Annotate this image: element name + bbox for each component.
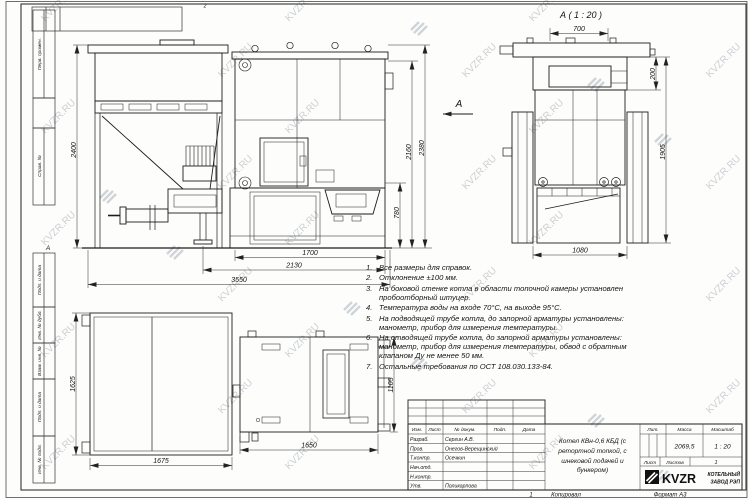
watermark-text: KVZR.RU bbox=[283, 433, 322, 472]
dim-1650: 1650 bbox=[301, 443, 317, 450]
margin-label: Инв. № дубл. bbox=[37, 310, 43, 340]
title-block-rows: Разраб. Сергин А.В. Пров. Онегов-Верещин… bbox=[410, 437, 498, 490]
note-item: 6.На отводящей трубе котла, до запорной … bbox=[366, 334, 642, 361]
notes-list: 1.Все размеры для справок. 2.Отклонение … bbox=[366, 264, 642, 373]
note-text: На отводящей трубе котла, до запорной ар… bbox=[379, 334, 642, 361]
margin-label: Справ. № bbox=[37, 155, 43, 177]
rear-view-title: А ( 1 : 20 ) bbox=[559, 10, 602, 20]
tb-col-podp: Подп. bbox=[494, 427, 507, 433]
margin-label: Подп. и дата bbox=[37, 265, 43, 295]
watermark-text: KVZR.RU bbox=[460, 153, 499, 192]
dim-1905: 1905 bbox=[660, 144, 667, 160]
watermark-text: KVZR.RU bbox=[283, 97, 322, 136]
tb-col-docnum: № докум. bbox=[454, 427, 475, 433]
footer-copy-label: Копировал bbox=[551, 493, 581, 499]
drawing-title: Котел КВн-0,6 КБД (с ретортной топкой, с… bbox=[546, 425, 639, 488]
tb-role: Нач.отд. bbox=[410, 465, 432, 471]
company-line-1: КОТЕЛЬНЫЙ bbox=[707, 470, 740, 478]
watermark-text: KVZR.RU bbox=[704, 153, 743, 192]
rear-view-labels: А ( 1 : 20 ) 700 200 1905 1080 bbox=[559, 10, 667, 255]
dim-1105: 1105 bbox=[388, 377, 395, 392]
watermark-text: KVZR.RU bbox=[704, 41, 743, 80]
plan-view-dim-labels: 1625 1675 1650 1105 bbox=[70, 376, 395, 465]
front-view bbox=[82, 40, 393, 248]
view-arrow-label: А bbox=[455, 99, 463, 110]
brand-text: KVZR bbox=[662, 472, 696, 486]
tb-col-izm: Изм. bbox=[412, 427, 422, 433]
margin-label: Подп. и дата bbox=[37, 392, 43, 422]
tb-role: Утв. bbox=[410, 484, 422, 490]
note-number: 7. bbox=[366, 363, 379, 372]
note-text: Температура воды на входе 70°С, на выход… bbox=[379, 304, 562, 313]
title-block-header: Изм. Лист № докум. Подп. Дата bbox=[412, 427, 536, 433]
margin-labels: Перв. примен. Справ. № Подп. и дата Инв.… bbox=[37, 4, 207, 474]
tb-role: Пров. bbox=[410, 446, 424, 452]
tb-role: Н.контр. bbox=[410, 474, 432, 480]
tb-name: Осечкин bbox=[445, 456, 465, 462]
watermark-text: KVZR.RU bbox=[704, 265, 743, 304]
dim-1625: 1625 bbox=[70, 376, 77, 392]
dim-1080: 1080 bbox=[572, 248, 588, 255]
tb-name: Онегов-Верещинский bbox=[445, 445, 498, 452]
dim-2380: 2380 bbox=[419, 140, 426, 157]
tb-lit-label: Лит. bbox=[646, 427, 658, 433]
watermark-text: KVZR.RU bbox=[283, 321, 322, 360]
tb-col-data: Дата bbox=[522, 427, 536, 433]
zone-letter: А bbox=[45, 245, 50, 252]
footer-zone: 1 bbox=[529, 493, 532, 499]
front-view-dimensions bbox=[73, 45, 432, 288]
dim-200: 200 bbox=[650, 68, 657, 81]
tb-name: Поликарпова bbox=[445, 484, 477, 490]
margin-label: Взам. инв. № bbox=[37, 346, 43, 376]
tb-sheet-label: Лист bbox=[643, 460, 656, 466]
note-number: 5. bbox=[366, 315, 379, 333]
tb-sheets-value: 1 bbox=[714, 460, 717, 466]
note-item: 7.Остальные требования по ОСТ 108.030.13… bbox=[366, 363, 642, 372]
watermark-text: KVZR.RU bbox=[39, 321, 78, 360]
dim-2400: 2400 bbox=[71, 142, 78, 159]
note-text: Отклонение ±100 мм. bbox=[379, 274, 458, 283]
tb-mass-value: 2069,5 bbox=[674, 444, 695, 451]
watermark-stamp-icon bbox=[100, 190, 116, 203]
watermark-text: KVZR.RU bbox=[460, 41, 499, 80]
title-block-right: Лит. Масса Масштаб 2069,5 1 : 20 Лист Ли… bbox=[643, 427, 734, 466]
watermark-text: KVZR.RU bbox=[39, 97, 78, 136]
watermark-stamp-icon bbox=[588, 78, 604, 91]
watermark-text: KVZR.RU bbox=[283, 209, 322, 248]
tb-mass-label: Масса bbox=[677, 427, 692, 433]
watermark-text: KVZR.RU bbox=[704, 377, 743, 416]
plan-view bbox=[82, 313, 390, 455]
drawing-sheet: KVZR.RUKVZR.RUKVZR.RUKVZR.RUKVZR.RUKVZR.… bbox=[0, 0, 750, 500]
note-text: На подводящей трубе котла, до запорной а… bbox=[379, 315, 642, 333]
note-item: 2.Отклонение ±100 мм. bbox=[366, 274, 642, 283]
company-line-2: ЗАВОД РЭП bbox=[710, 480, 740, 486]
note-text: Все размеры для справок. bbox=[379, 264, 472, 273]
watermark-text: KVZR.RU bbox=[39, 433, 78, 472]
watermark-text: KVZR.RU bbox=[460, 377, 499, 416]
tb-sheets-label: Листов bbox=[665, 460, 684, 466]
tb-scale-value: 1 : 20 bbox=[714, 444, 731, 451]
view-direction-marker: А bbox=[443, 99, 473, 114]
tb-col-list: Лист bbox=[427, 427, 440, 433]
note-item: 3.На боковой стенке котла в области топо… bbox=[366, 285, 642, 303]
tb-role: Разраб. bbox=[410, 437, 429, 443]
note-item: 5.На подводящей трубе котла, до запорной… bbox=[366, 315, 642, 333]
watermark-text: KVZR.RU bbox=[39, 209, 78, 248]
tb-role: Т.контр. bbox=[410, 456, 431, 462]
tb-scale-label: Масштаб bbox=[711, 427, 734, 433]
note-number: 3. bbox=[366, 285, 379, 303]
tb-name: Сергин А.В. bbox=[445, 437, 474, 443]
sheet-frame bbox=[6, 2, 747, 498]
note-number: 2. bbox=[366, 274, 379, 283]
note-text: На боковой стенке котла в области топочн… bbox=[379, 285, 642, 303]
note-item: 1.Все размеры для справок. bbox=[366, 264, 642, 273]
note-item: 4.Температура воды на входе 70°С, на вых… bbox=[366, 304, 642, 313]
dim-700: 700 bbox=[573, 26, 585, 33]
note-number: 4. bbox=[366, 304, 379, 313]
rear-view bbox=[500, 38, 655, 243]
note-number: 6. bbox=[366, 334, 379, 361]
zone-number: 2 bbox=[203, 4, 207, 10]
note-text: Остальные требования по ОСТ 108.030.133-… bbox=[379, 363, 553, 372]
note-number: 1. bbox=[366, 264, 379, 273]
watermark-stamp-icon bbox=[411, 22, 427, 35]
footer-format-label: Формат А3 bbox=[654, 493, 687, 499]
dim-780: 780 bbox=[394, 207, 401, 219]
dim-2160: 2160 bbox=[406, 144, 413, 161]
dim-1675: 1675 bbox=[153, 458, 169, 465]
margin-label: Инв. № подл. bbox=[37, 444, 43, 474]
watermark-stamp-icon bbox=[344, 302, 360, 315]
watermark-layer: KVZR.RUKVZR.RUKVZR.RUKVZR.RUKVZR.RUKVZR.… bbox=[39, 0, 743, 483]
dim-2130: 2130 bbox=[285, 263, 302, 270]
dim-3550: 3550 bbox=[231, 277, 247, 284]
kvzr-logo-icon bbox=[645, 470, 659, 484]
margin-label: Перв. примен. bbox=[37, 38, 43, 70]
dim-1700: 1700 bbox=[302, 250, 318, 257]
